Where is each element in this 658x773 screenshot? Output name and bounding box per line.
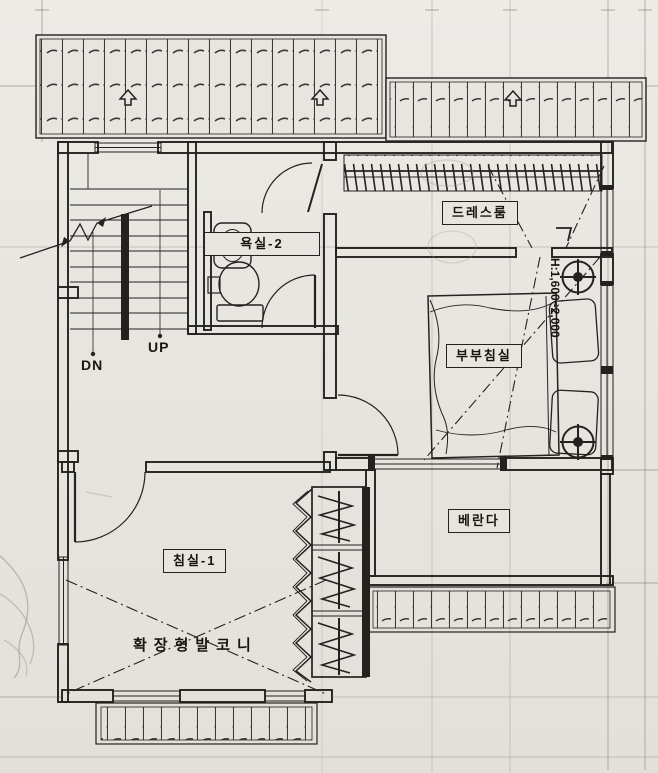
room-label-dressroom: 드레스룸 [442,201,518,225]
bed [428,293,599,458]
floor-plan-sheet: H:1,600~2,000 드레스룸 욕실-2 부부침실 베란다 침실-1 확장… [0,0,658,773]
stairs-up-label: UP [148,339,169,355]
room-label-extended-balcony: 확장형발코니 [133,634,258,655]
plan-drawing: H:1,600~2,000 [0,0,658,773]
bifold-door [296,489,312,682]
stair-break-line [20,206,152,258]
door-bathroom-inner [262,163,322,213]
roof-hatch-band [36,35,646,141]
room-label-veranda: 베란다 [448,509,510,533]
circled-cross-icon [560,259,596,295]
toilet-icon [208,262,263,321]
hanger-marks [318,491,354,675]
mark [556,228,571,241]
stairs-down-label: DN [81,357,103,373]
door-bedroom1 [75,472,145,542]
room-label-master-bedroom: 부부침실 [446,344,522,368]
wardrobe [293,487,370,682]
door-bathroom [262,275,315,328]
room-label-bedroom1: 침실-1 [163,549,226,573]
slope-height-annotation: H:1,600~2,000 [548,258,562,338]
door-master-bedroom [338,395,398,455]
room-label-bathroom2: 욕실-2 [204,232,320,256]
stairs [20,153,188,356]
